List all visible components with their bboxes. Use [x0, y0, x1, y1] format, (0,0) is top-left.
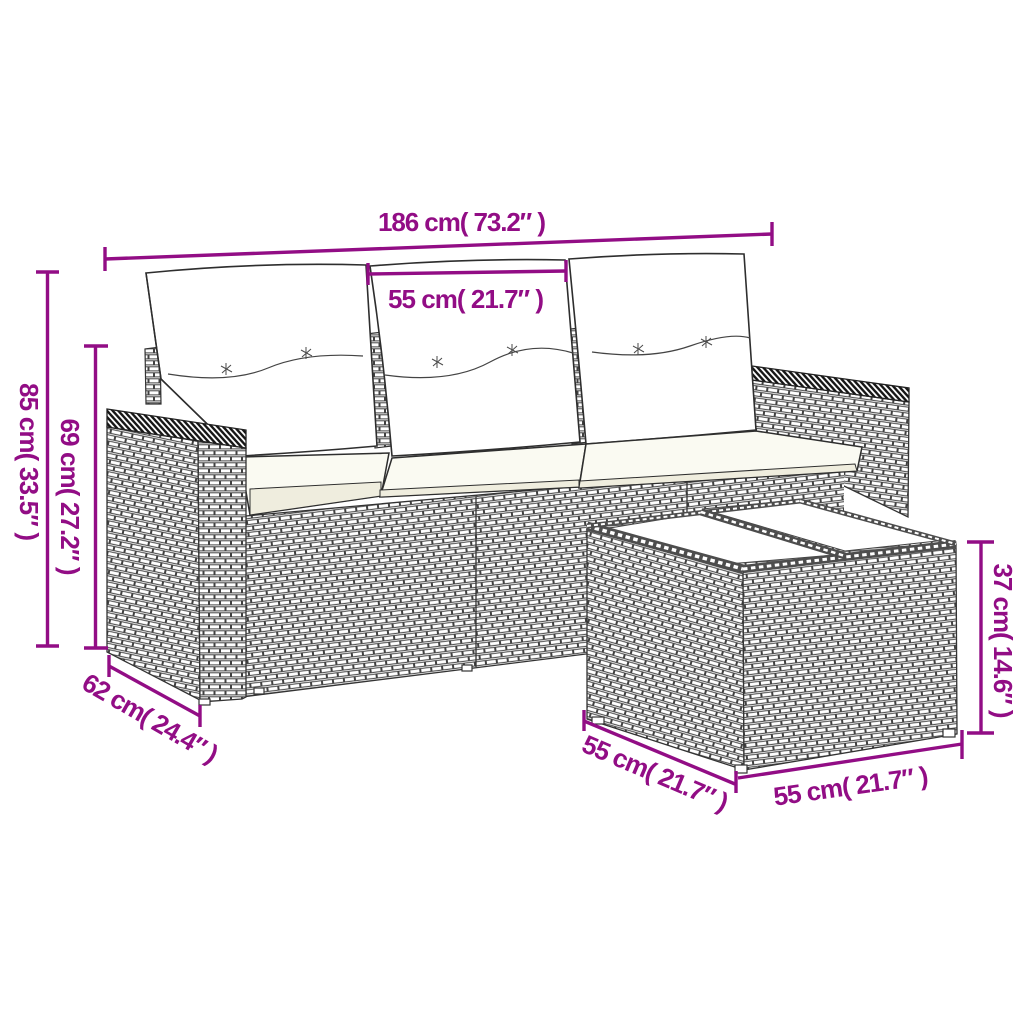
svg-text:69 cm( 27.2″ ): 69 cm( 27.2″ ) [55, 419, 85, 576]
svg-text:85 cm( 33.5″ ): 85 cm( 33.5″ ) [14, 383, 44, 541]
svg-text:186 cm( 73.2″ ): 186 cm( 73.2″ ) [378, 207, 546, 237]
svg-text:37 cm( 14.6″ ): 37 cm( 14.6″ ) [988, 564, 1018, 719]
svg-text:55 cm( 21.7″ ): 55 cm( 21.7″ ) [388, 284, 544, 314]
